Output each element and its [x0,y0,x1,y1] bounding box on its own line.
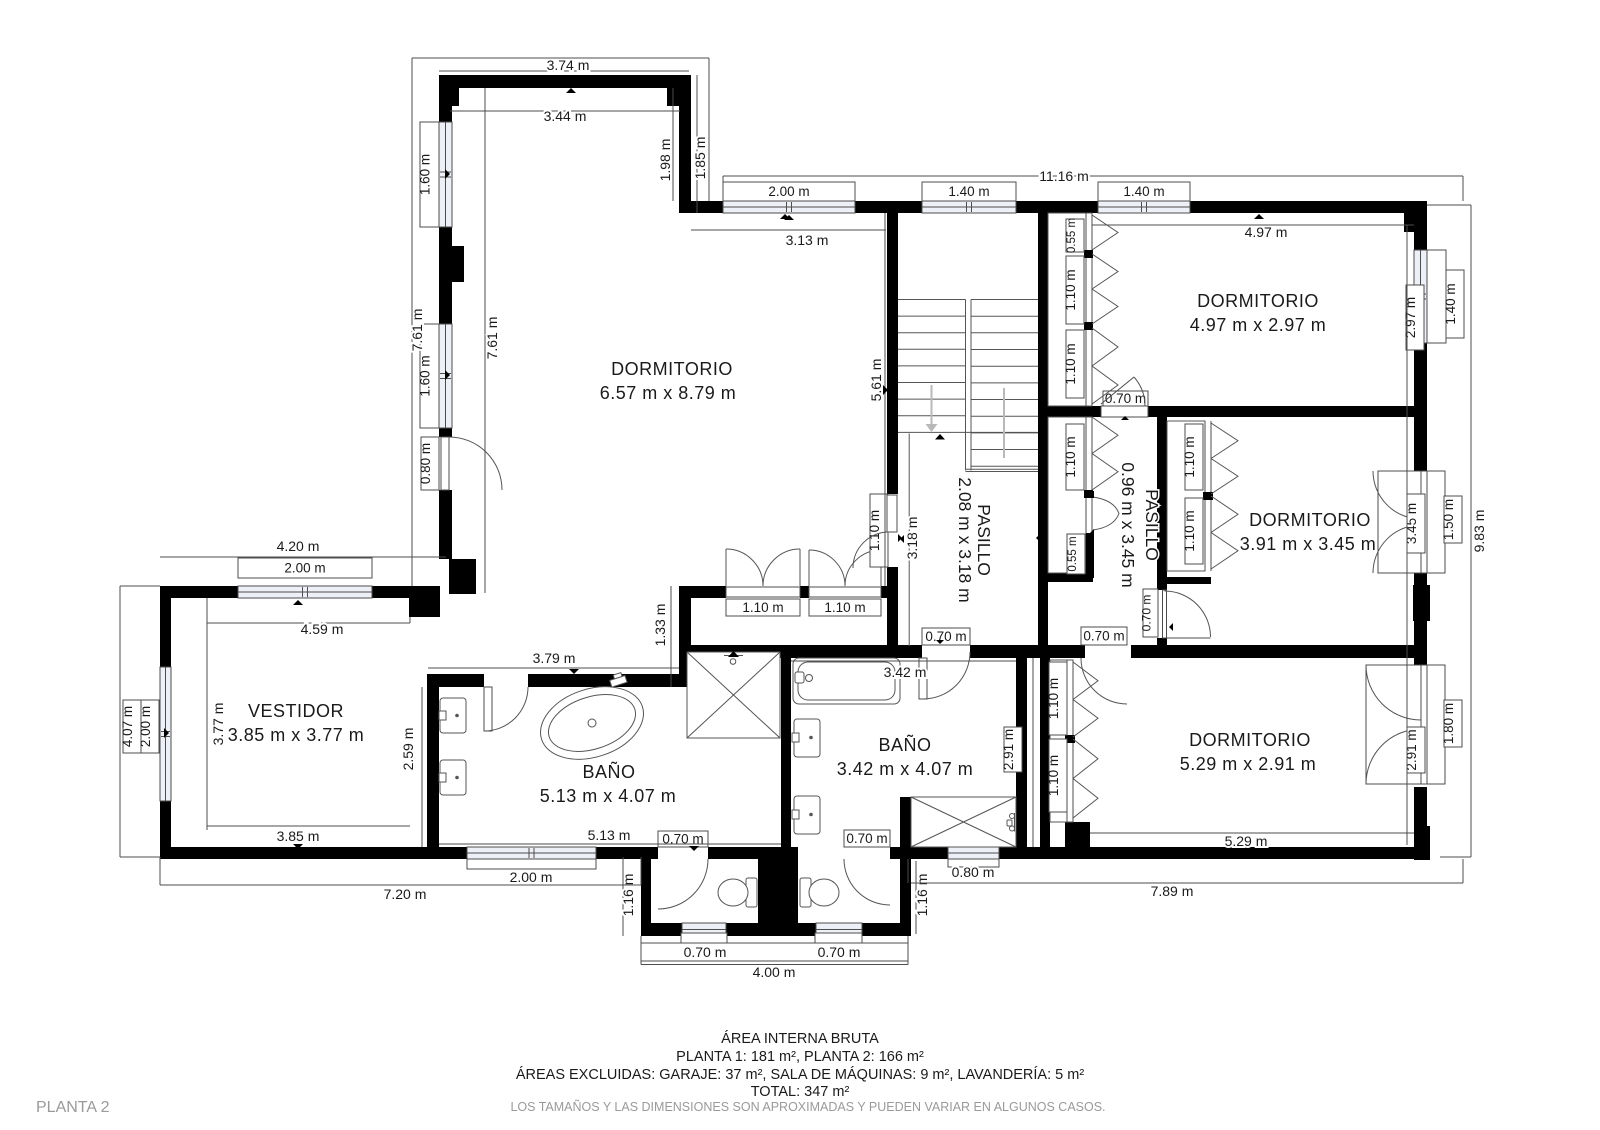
svg-text:2.00 m: 2.00 m [510,869,553,885]
svg-text:1.40 m: 1.40 m [948,184,989,199]
svg-text:2.00 m: 2.00 m [284,561,325,576]
svg-text:1.33 m: 1.33 m [652,604,668,647]
svg-text:2.08 m x 3.18 m: 2.08 m x 3.18 m [955,477,975,602]
svg-text:2.91 m: 2.91 m [1404,729,1419,770]
svg-text:PASILLO: PASILLO [1142,489,1162,561]
svg-text:3.77 m: 3.77 m [210,703,226,746]
svg-text:1.10 m: 1.10 m [867,510,882,551]
svg-text:7.20 m: 7.20 m [384,886,427,902]
svg-text:TOTAL: 347 m²: TOTAL: 347 m² [751,1084,850,1100]
svg-text:0.70 m: 0.70 m [846,831,887,846]
svg-text:1.60 m: 1.60 m [418,154,433,195]
svg-text:1.16 m: 1.16 m [620,874,636,917]
svg-text:1.60 m: 1.60 m [418,355,433,396]
svg-text:5.13 m: 5.13 m [588,827,631,843]
svg-text:DORMITORIO: DORMITORIO [1197,291,1319,311]
svg-text:3.79 m: 3.79 m [533,650,576,666]
svg-text:ÁREA INTERNA BRUTA: ÁREA INTERNA BRUTA [721,1030,879,1047]
svg-text:4.20 m: 4.20 m [277,538,320,554]
svg-text:1.10 m: 1.10 m [1063,269,1078,310]
svg-text:1.10 m: 1.10 m [1063,343,1078,384]
svg-text:0.70 m: 0.70 m [684,944,727,960]
svg-text:1.80 m: 1.80 m [1441,703,1456,744]
svg-text:3.44 m: 3.44 m [544,108,587,124]
svg-text:4.59 m: 4.59 m [301,621,344,637]
svg-text:LOS TAMAÑOS Y LAS DIMENSIONES: LOS TAMAÑOS Y LAS DIMENSIONES SON APROXI… [510,1100,1105,1114]
svg-text:5.29 m x 2.91 m: 5.29 m x 2.91 m [1180,754,1317,774]
svg-text:1.85 m: 1.85 m [692,137,708,180]
svg-text:0.70 m: 0.70 m [1140,595,1154,632]
svg-text:1.40 m: 1.40 m [1443,283,1458,324]
svg-text:0.70 m: 0.70 m [1083,629,1124,644]
svg-text:VESTIDOR: VESTIDOR [248,701,344,721]
svg-text:DORMITORIO: DORMITORIO [1249,510,1371,530]
svg-text:PASILLO: PASILLO [974,504,994,576]
svg-text:1.10 m: 1.10 m [1182,510,1197,551]
svg-text:3.91 m x 3.45 m: 3.91 m x 3.45 m [1240,534,1377,554]
svg-text:0.70 m: 0.70 m [1105,391,1146,406]
svg-text:3.18 m: 3.18 m [904,517,920,560]
svg-text:2.00 m: 2.00 m [768,184,809,199]
svg-text:2.91 m: 2.91 m [1001,729,1016,770]
svg-text:1.98 m: 1.98 m [657,139,673,182]
svg-text:3.85 m x 3.77 m: 3.85 m x 3.77 m [228,725,365,745]
svg-text:DORMITORIO: DORMITORIO [1189,730,1311,750]
svg-text:5.29 m: 5.29 m [1225,833,1268,849]
svg-text:1.10 m: 1.10 m [1046,755,1061,796]
svg-text:7.89 m: 7.89 m [1151,883,1194,899]
svg-text:7.61 m: 7.61 m [484,317,500,360]
svg-text:3.85 m: 3.85 m [277,828,320,844]
svg-text:3.45 m: 3.45 m [1404,503,1419,544]
svg-text:3.13 m: 3.13 m [786,232,829,248]
svg-text:4.00 m: 4.00 m [753,964,796,980]
svg-text:0.55 m: 0.55 m [1066,218,1078,253]
svg-text:BAÑO: BAÑO [582,761,635,782]
svg-text:DORMITORIO: DORMITORIO [611,359,733,379]
svg-text:5.13 m x 4.07 m: 5.13 m x 4.07 m [540,786,677,806]
svg-text:4.07 m: 4.07 m [120,706,135,747]
svg-text:3.42 m x 4.07 m: 3.42 m x 4.07 m [837,759,974,779]
svg-text:6.57 m x 8.79 m: 6.57 m x 8.79 m [600,383,737,403]
svg-text:1.10 m: 1.10 m [742,600,783,615]
svg-text:2.97 m: 2.97 m [1403,297,1418,338]
svg-text:1.10 m: 1.10 m [1046,678,1061,719]
svg-text:4.97 m x 2.97 m: 4.97 m x 2.97 m [1190,315,1327,335]
svg-text:0.80 m: 0.80 m [418,443,433,484]
svg-text:1.16 m: 1.16 m [914,874,930,917]
svg-text:11.16 m: 11.16 m [1039,168,1089,184]
svg-text:PLANTA 2: PLANTA 2 [36,1099,110,1116]
svg-text:0.96 m x 3.45 m: 0.96 m x 3.45 m [1118,462,1138,587]
svg-text:4.97 m: 4.97 m [1245,224,1288,240]
svg-text:3.74 m: 3.74 m [547,57,590,73]
svg-text:0.70 m: 0.70 m [925,629,966,644]
svg-text:ÁREAS EXCLUIDAS: GARAJE: 37 m²: ÁREAS EXCLUIDAS: GARAJE: 37 m², SALA DE … [516,1066,1085,1083]
svg-text:5.61 m: 5.61 m [868,359,884,402]
svg-text:0.80 m: 0.80 m [952,864,995,880]
svg-text:2.59 m: 2.59 m [400,728,416,771]
svg-text:1.40 m: 1.40 m [1123,184,1164,199]
svg-text:1.10 m: 1.10 m [1182,436,1197,477]
svg-text:3.42 m: 3.42 m [884,664,927,680]
svg-text:PLANTA 1: 181 m², PLANTA 2: 16: PLANTA 1: 181 m², PLANTA 2: 166 m² [676,1049,924,1065]
svg-text:1.10 m: 1.10 m [824,600,865,615]
svg-text:9.83 m: 9.83 m [1471,510,1487,553]
svg-text:0.70 m: 0.70 m [818,944,861,960]
svg-text:BAÑO: BAÑO [878,734,931,755]
svg-text:2.00 m: 2.00 m [138,706,153,747]
svg-text:0.55 m: 0.55 m [1067,536,1079,571]
svg-text:1.50 m: 1.50 m [1441,499,1456,540]
svg-text:7.61 m: 7.61 m [409,309,425,352]
svg-text:1.10 m: 1.10 m [1063,436,1078,477]
